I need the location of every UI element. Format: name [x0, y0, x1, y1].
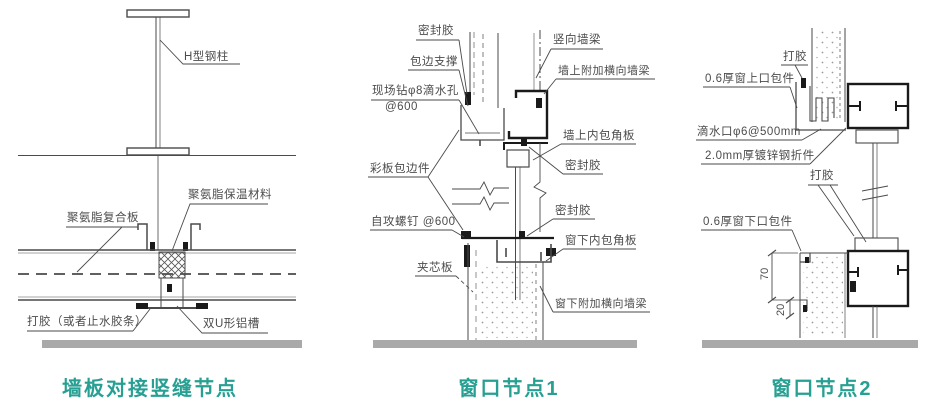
label-wall-added-beam: 墙上附加横向墙梁	[558, 65, 650, 78]
label-window-corner-panel: 窗下内包角板	[565, 235, 637, 248]
panel-title-window-node-1: 窗口节点1	[419, 372, 599, 401]
label-vertical-beam: 竖向墙梁	[553, 34, 601, 47]
label-u-channel: 双U形铝槽	[203, 318, 260, 331]
label-galvanized-piece: 2.0mm厚镀锌钢折件	[705, 150, 815, 163]
label-screw: 自攻螺钉 @600	[371, 216, 456, 229]
label-drill-hole: 现场钻φ8滴水孔	[372, 85, 459, 98]
label-bottom-wrap: 0.6厚窗下口包件	[703, 216, 793, 229]
seam-insulation-hatch	[159, 252, 185, 278]
label-wall-corner-panel: 墙上内包角板	[563, 130, 635, 143]
label-drip-outlet: 滴水口φ6@500mm	[697, 126, 801, 139]
label-glue-mid: 打胶	[810, 170, 834, 183]
h-column-top-flange	[127, 10, 189, 17]
label-drill-spacing: @600	[385, 101, 418, 114]
label-top-wrap: 0.6厚窗上口包件	[705, 73, 795, 86]
label-color-panel-edge: 彩板包边件	[370, 163, 430, 176]
label-sandwich-panel: 夹芯板	[417, 262, 453, 275]
ground-bar-1	[42, 340, 302, 348]
panel-title-window-node-2: 窗口节点2	[732, 372, 912, 401]
label-h-column: H型钢柱	[184, 51, 229, 64]
ground-bar-3	[702, 340, 918, 348]
ground-bar-2	[373, 340, 637, 348]
label-composite-panel: 聚氨脂复合板	[67, 212, 139, 225]
label-sealant-mid: 密封胶	[565, 160, 601, 173]
label-window-added-beam: 窗下附加横向墙梁	[555, 298, 647, 311]
dimension-70: 70	[759, 268, 771, 280]
dimension-20: 20	[775, 304, 787, 316]
construction-detail-sheet: 70 20 H型钢柱 聚氨脂保温材料 聚氨脂复合板 打胶（或者止水胶条） 双U形…	[0, 0, 950, 409]
wall-joint-drawing	[18, 10, 302, 348]
label-glue-top: 打胶	[783, 51, 807, 64]
h-column-bottom-flange	[127, 148, 189, 155]
label-sealant-lower: 密封胶	[555, 205, 591, 218]
label-sealant-strip: 打胶（或者止水胶条）	[27, 316, 147, 329]
line-drawing-layer: 70 20	[0, 0, 950, 409]
label-insulation: 聚氨脂保温材料	[188, 189, 272, 202]
panel-title-wall-joint: 墙板对接竖缝节点	[40, 372, 260, 401]
label-sealant-top: 密封胶	[418, 25, 454, 38]
label-edge-support: 包边支撑	[410, 56, 458, 69]
